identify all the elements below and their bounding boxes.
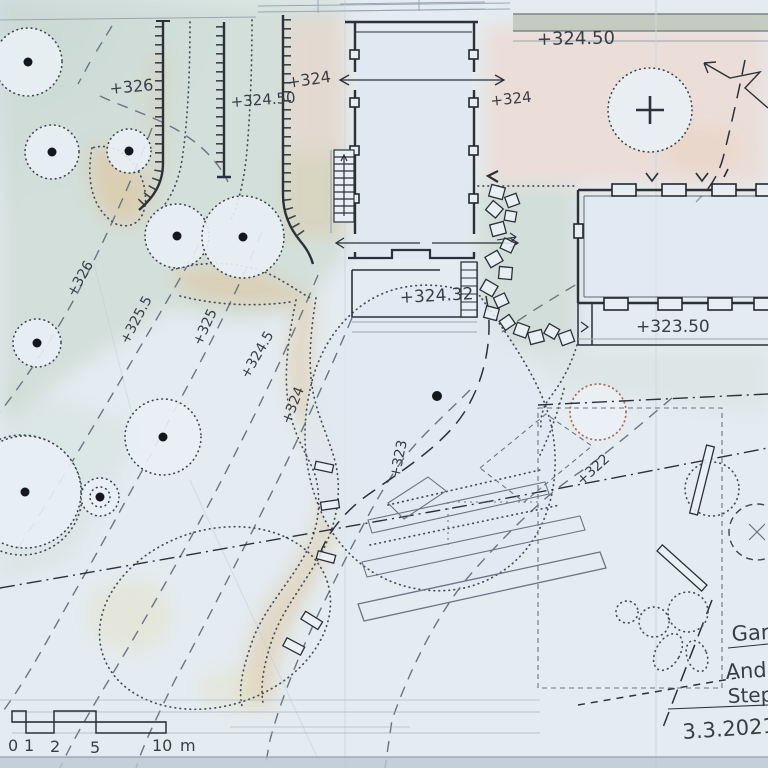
tree (81, 478, 119, 516)
scale-tick-0: 0 (8, 736, 18, 755)
title-line-2: Andr (725, 657, 768, 684)
title-line-3: Step (727, 682, 768, 708)
tree (25, 125, 79, 179)
scale-tick-2: 2 (50, 737, 60, 756)
elevation-label-upper-lawn: +326 (109, 75, 154, 98)
scale-unit: m (180, 736, 196, 755)
elevation-label-barn-terrace: +323.50 (636, 317, 710, 337)
wall-notch (574, 224, 583, 238)
stepping-stone (498, 266, 512, 279)
stepping-stone (528, 329, 545, 344)
new-tree-cross (608, 68, 692, 152)
tree (13, 319, 61, 367)
title-line-1: Gart (731, 620, 768, 646)
stairs-west (331, 150, 354, 233)
stepping-stone (490, 221, 507, 236)
red-dotted-tree (570, 384, 626, 440)
stepping-stone (504, 210, 517, 222)
second-building-interior (583, 195, 768, 298)
tree (125, 399, 201, 475)
site-plan-drawing: +324.50 +326 +324.50 +324 +324 +324.32 +… (0, 0, 768, 768)
elevation-label-house-terrace: +324.32 (399, 284, 474, 308)
step (321, 500, 340, 510)
scale-tick-10: 10 (152, 736, 172, 755)
elevation-label-street: +324.50 (537, 28, 615, 50)
tree (432, 391, 442, 401)
soil-wash (198, 668, 266, 712)
tree (107, 129, 151, 173)
soil-wash (88, 579, 172, 651)
scale-tick-1: 1 (24, 736, 34, 755)
tree (145, 204, 209, 268)
garden-plan-photo: +324.50 +326 +324.50 +324 +324 +324.32 +… (0, 0, 768, 768)
stepping-stone (489, 184, 506, 199)
scale-tick-5: 5 (90, 738, 100, 757)
stepping-stone (484, 306, 500, 321)
main-building-interior (357, 30, 472, 258)
tree (202, 196, 284, 278)
